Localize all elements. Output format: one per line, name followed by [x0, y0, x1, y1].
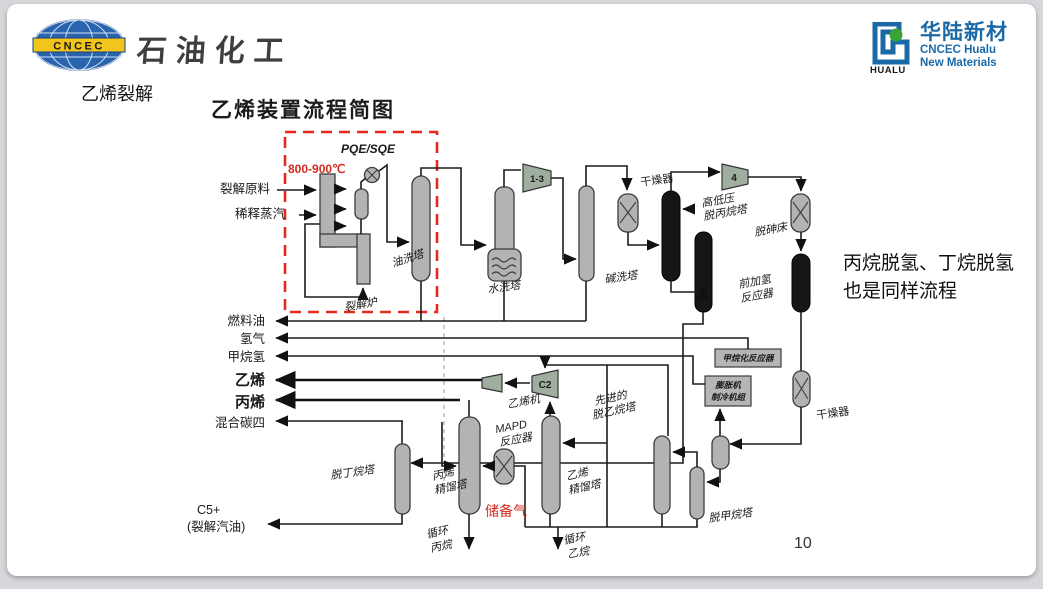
hualu-logo: HUALU 华陆新材 CNCEC Hualu New Materials	[869, 22, 1008, 74]
expander-label-1: 膨胀机	[714, 380, 741, 390]
section-label: 乙烯裂解	[81, 80, 153, 106]
quench-exchanger	[355, 165, 409, 242]
storage-gas-label: 储备气	[485, 503, 527, 519]
cracking-furnace-label: 裂解炉	[343, 295, 380, 314]
arsenic-bed-label: 脱砷床	[753, 220, 790, 239]
arsenic-removal-bed	[791, 194, 810, 251]
demethanizer-label: 脱甲烷塔	[708, 506, 755, 525]
cncec-globe-icon: CNCEC	[31, 18, 127, 72]
hualu-name-en1: CNCEC Hualu	[920, 44, 1008, 57]
product-methane-h2: 甲烷氢	[227, 349, 265, 364]
debutanizer	[395, 444, 410, 514]
product-c5-line1: C5+	[197, 503, 220, 517]
water-wash-tower	[488, 170, 521, 321]
product-hydrogen: 氢气	[240, 331, 266, 346]
feed-cracking-stock-label: 裂解原料	[220, 182, 271, 196]
screenshot-root: { "header": { "cncec_logo_text": "CNCEC"…	[0, 0, 1043, 589]
recycle-propane-label-1: 循环	[425, 523, 451, 541]
depropanizer-towers	[411, 172, 720, 463]
compressor-1-3-label: 1-3	[530, 174, 544, 185]
recycle-ethane-label-2: 乙烷	[566, 544, 592, 561]
dryer-2-label: 干燥器	[816, 405, 850, 422]
dryer-1	[618, 194, 659, 245]
pqe-sqe-label: PQE/SQE	[341, 142, 396, 156]
slide: CNCEC 石油化工 HUALU 华陆新材 CNCEC Hualu New Ma…	[7, 4, 1036, 576]
caustic-wash-tower-label: 碱洗塔	[604, 268, 640, 286]
deethanizer-demethanizer	[654, 436, 729, 519]
debutanizer-label: 脱丁烷塔	[330, 463, 377, 482]
oil-wash-tower	[412, 168, 486, 321]
ethylene-compressor-label: 乙烯机	[506, 392, 542, 411]
cncec-logo-text: CNCEC	[53, 41, 105, 53]
compressor-4-label: 4	[731, 173, 737, 184]
feed-dilution-steam-label: 稀释蒸汽	[235, 206, 286, 221]
furnace-temperature: 800-900℃	[288, 162, 346, 176]
brand-title: 石油化工	[135, 26, 294, 70]
hualu-name-cn: 华陆新材	[920, 22, 1008, 44]
caustic-wash-tower	[579, 166, 627, 321]
recycle-ethane-label-1: 循环	[562, 530, 588, 547]
product-mixed-c4: 混合碳四	[215, 415, 265, 430]
cncec-logo: CNCEC	[31, 18, 127, 72]
recycle-propane-label-2: 丙烷	[429, 537, 455, 555]
product-ethylene: 乙烯	[235, 371, 265, 389]
hualu-name-en2: New Materials	[920, 57, 1008, 70]
hualu-mark-icon: HUALU	[869, 22, 913, 74]
expander-label-2: 制冷机组	[711, 392, 747, 402]
compressor-c2-label: C2	[539, 380, 552, 391]
dryer-1-label: 干燥器	[640, 172, 674, 189]
product-fuel-oil: 燃料油	[227, 313, 265, 328]
hualu-logo-text: HUALU	[870, 65, 906, 74]
front-hydrogenation-reactor	[792, 254, 810, 371]
product-c5-line2: (裂解汽油)	[187, 519, 245, 534]
product-propylene: 丙烯	[235, 393, 265, 411]
process-flow-diagram: 800-900℃ PQE/SQE 裂解炉 裂解原料 稀释蒸汽	[15, 112, 1037, 585]
methanation-reactor-label: 甲烷化反应器	[722, 353, 775, 363]
